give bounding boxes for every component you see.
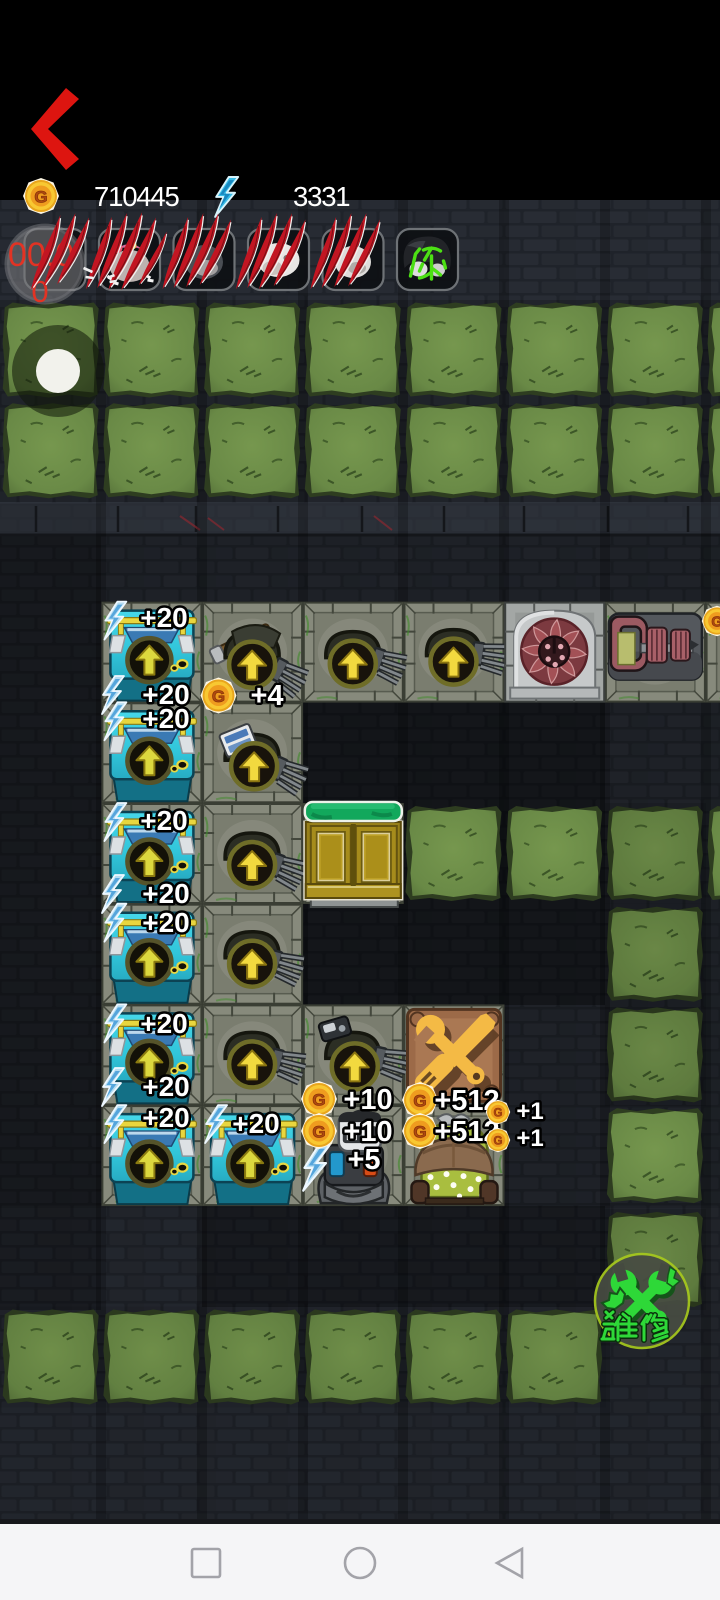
svg-text:+4: +4	[250, 680, 283, 712]
svg-text:+20: +20	[140, 1008, 188, 1039]
svg-text:+5: +5	[347, 1144, 380, 1176]
svg-text:+20: +20	[142, 878, 190, 909]
svg-text:+20: +20	[142, 1071, 190, 1102]
svg-text:+10: +10	[343, 1084, 392, 1116]
svg-text:710445: 710445	[94, 181, 179, 212]
svg-text:+20: +20	[142, 1102, 190, 1133]
svg-text:+20: +20	[232, 1108, 280, 1139]
svg-text:+20: +20	[142, 703, 190, 734]
svg-text:+20: +20	[140, 805, 188, 836]
svg-text:+1: +1	[516, 1125, 543, 1152]
svg-text:3331: 3331	[293, 181, 349, 212]
svg-text:+20: +20	[140, 602, 188, 633]
svg-text:+20: +20	[142, 907, 190, 938]
svg-text:+1: +1	[516, 1098, 543, 1125]
